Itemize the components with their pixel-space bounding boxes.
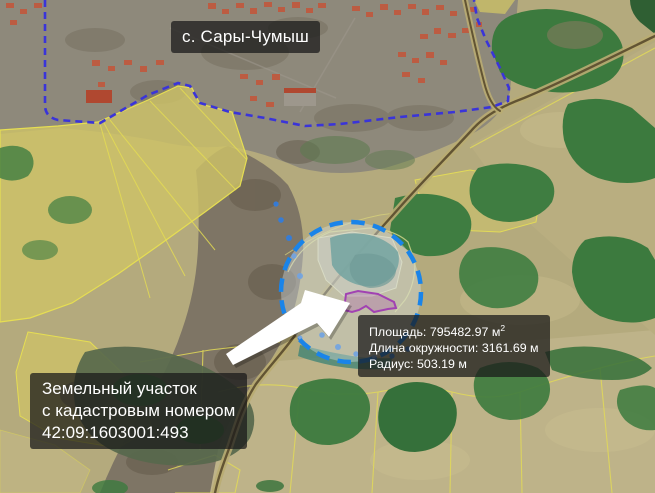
- village-label: с. Сары-Чумыш: [171, 21, 320, 53]
- cadastral-label-line2: с кадастровым номером: [42, 400, 235, 422]
- map-screenshot: с. Сары-Чумыш Площадь: 795482.97 м2 Длин…: [0, 0, 655, 493]
- measurement-info-box: Площадь: 795482.97 м2 Длина окружности: …: [358, 315, 550, 377]
- radius-text: Радиус: 503.19 м: [369, 356, 539, 372]
- area-text: Площадь: 795482.97 м2: [369, 320, 539, 340]
- circumference-text: Длина окружности: 3161.69 м: [369, 340, 539, 356]
- cadastral-label: Земельный участок с кадастровым номером …: [30, 373, 247, 449]
- cadastral-label-line3: 42:09:1603001:493: [42, 422, 235, 444]
- cadastral-label-line1: Земельный участок: [42, 378, 235, 400]
- area-superscript: 2: [500, 323, 505, 333]
